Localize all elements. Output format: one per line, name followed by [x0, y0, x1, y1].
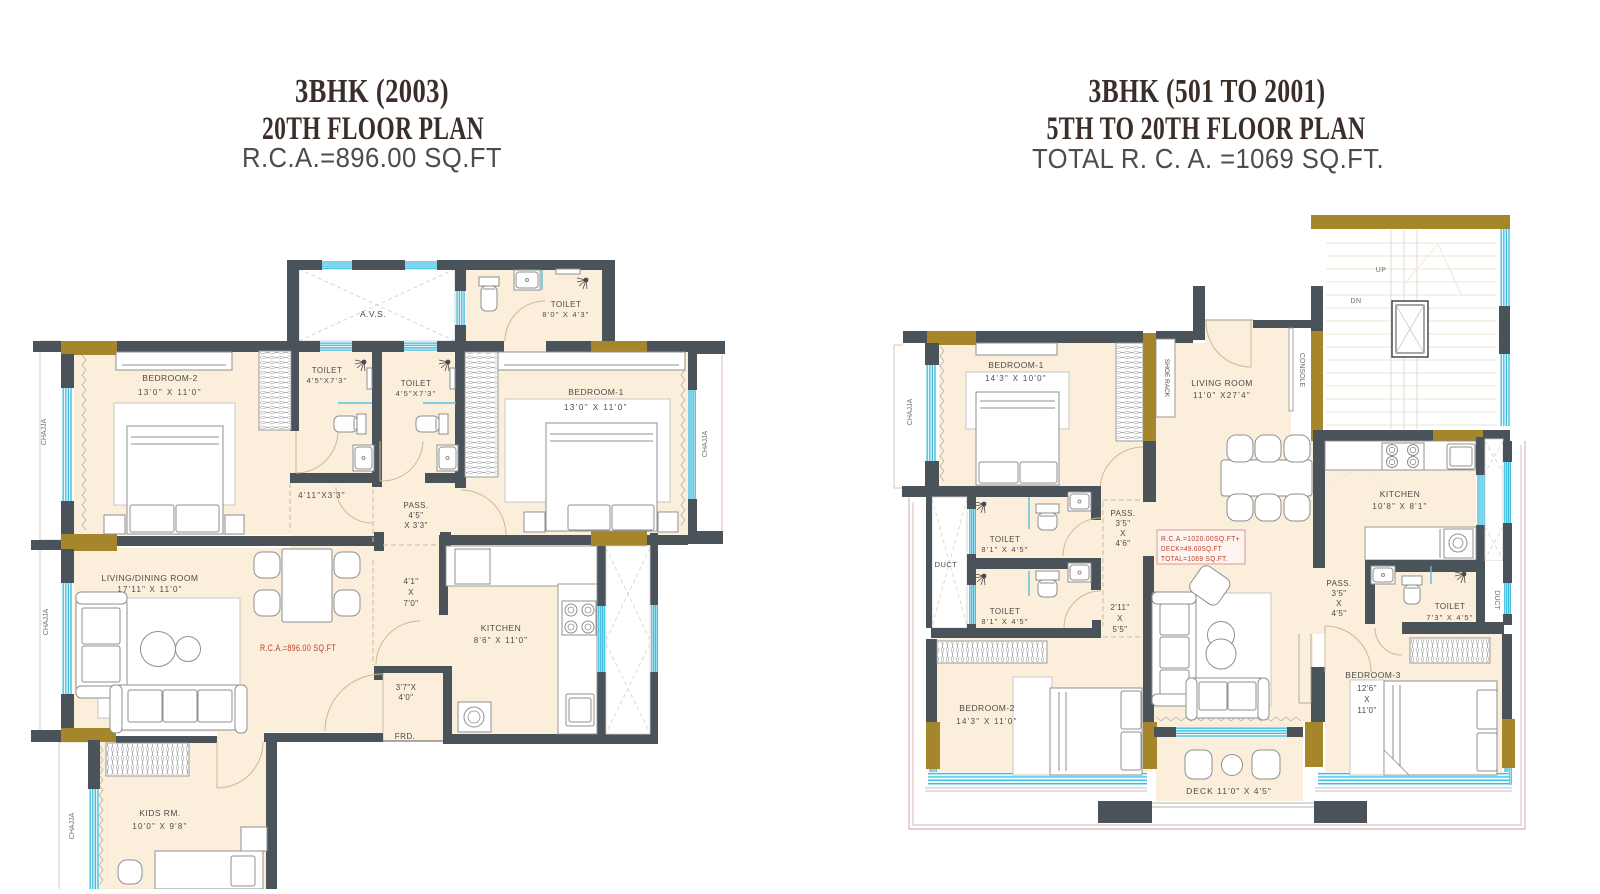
svg-text:R.C.A.=1020.00SQ.FT+: R.C.A.=1020.00SQ.FT+: [1161, 534, 1240, 543]
svg-text:A.V.S.: A.V.S.: [360, 309, 386, 319]
svg-text:8'1" X 4'5": 8'1" X 4'5": [981, 545, 1028, 554]
svg-text:TOILET: TOILET: [990, 607, 1021, 616]
svg-text:KIDS RM.: KIDS RM.: [139, 808, 180, 818]
svg-text:KITCHEN: KITCHEN: [1380, 489, 1420, 499]
svg-text:X: X: [1120, 529, 1126, 538]
svg-text:DECK=49.00SQ.FT: DECK=49.00SQ.FT: [1161, 544, 1222, 553]
svg-text:PASS.: PASS.: [1110, 509, 1135, 518]
svg-text:14'3" X 10'0": 14'3" X 10'0": [985, 374, 1047, 383]
svg-text:BEDROOM-3: BEDROOM-3: [1345, 670, 1401, 680]
svg-text:2'11": 2'11": [1110, 603, 1129, 612]
svg-text:5TH TO 20TH FLOOR PLAN: 5TH TO 20TH FLOOR PLAN: [1047, 111, 1366, 147]
svg-text:10'8" X 8'1": 10'8" X 8'1": [1372, 502, 1427, 511]
svg-text:8'1" X 4'5": 8'1" X 4'5": [981, 617, 1028, 626]
svg-text:KITCHEN: KITCHEN: [481, 623, 521, 633]
svg-text:3BHK (501 TO 2001): 3BHK (501 TO 2001): [1089, 73, 1326, 110]
svg-text:3'7"X: 3'7"X: [396, 683, 417, 692]
svg-text:8'0" X 4'3": 8'0" X 4'3": [542, 310, 589, 319]
svg-text:X: X: [408, 588, 414, 597]
svg-text:BEDROOM-1: BEDROOM-1: [988, 360, 1044, 370]
svg-text:11'0": 11'0": [1357, 706, 1376, 715]
svg-text:CONSOLE: CONSOLE: [1298, 353, 1305, 388]
svg-text:3'5": 3'5": [1331, 589, 1346, 598]
svg-text:13'0" X 11'0": 13'0" X 11'0": [564, 403, 628, 412]
svg-text:7'0": 7'0": [403, 599, 418, 608]
svg-text:CHAJJA: CHAJJA: [702, 430, 709, 457]
svg-text:4'5"X7'3": 4'5"X7'3": [307, 376, 348, 385]
svg-text:4'5"X7'3": 4'5"X7'3": [396, 389, 437, 398]
svg-text:TOILET: TOILET: [312, 366, 343, 375]
svg-text:4'1": 4'1": [403, 577, 418, 586]
svg-text:CHAJJA: CHAJJA: [907, 398, 914, 425]
svg-text:X: X: [1364, 695, 1370, 704]
svg-text:DUCT: DUCT: [1493, 590, 1500, 610]
svg-text:TOILET: TOILET: [551, 300, 582, 309]
svg-text:10'0" X 9'8": 10'0" X 9'8": [132, 822, 187, 831]
svg-text:CHAJJA: CHAJJA: [43, 608, 50, 635]
svg-text:3BHK (2003): 3BHK (2003): [295, 73, 449, 110]
svg-text:TOTAL R. C. A. =1069 SQ.FT.: TOTAL R. C. A. =1069 SQ.FT.: [1032, 143, 1384, 174]
svg-text:BEDROOM-2: BEDROOM-2: [959, 703, 1015, 713]
svg-text:DECK 11'0" X 4'5": DECK 11'0" X 4'5": [1186, 786, 1272, 796]
svg-text:14'3" X 11'0": 14'3" X 11'0": [956, 717, 1018, 726]
svg-text:LIVING/DINING ROOM: LIVING/DINING ROOM: [102, 573, 199, 583]
svg-text:7'3" X 4'5": 7'3" X 4'5": [1426, 613, 1473, 622]
svg-text:11'0" X27'4": 11'0" X27'4": [1193, 391, 1251, 400]
svg-text:4'11"X3'3": 4'11"X3'3": [298, 491, 346, 500]
svg-text:X: X: [1336, 599, 1342, 608]
svg-text:SHOE RACK: SHOE RACK: [1163, 359, 1170, 398]
svg-text:BEDROOM-1: BEDROOM-1: [568, 387, 624, 397]
svg-text:TOILET: TOILET: [1435, 602, 1466, 611]
svg-text:13'0" X 11'0": 13'0" X 11'0": [138, 388, 202, 397]
svg-text:12'6": 12'6": [1357, 684, 1377, 693]
svg-text:BEDROOM-2: BEDROOM-2: [142, 373, 198, 383]
svg-text:8'6" X 11'0": 8'6" X 11'0": [474, 636, 529, 645]
svg-text:CHAJJA: CHAJJA: [69, 812, 76, 839]
svg-text:5'5": 5'5": [1112, 625, 1127, 634]
svg-text:FRD.: FRD.: [395, 732, 415, 741]
svg-text:X: X: [1117, 614, 1123, 623]
svg-text:4'5": 4'5": [1331, 609, 1346, 618]
svg-text:TOTAL=1069 SQ.FT.: TOTAL=1069 SQ.FT.: [1161, 554, 1228, 563]
svg-text:LIVING ROOM: LIVING ROOM: [1191, 378, 1253, 388]
svg-text:PASS.: PASS.: [1326, 579, 1351, 588]
svg-text:R.C.A.=896.00 SQ.FT: R.C.A.=896.00 SQ.FT: [260, 643, 336, 653]
svg-text:PASS.: PASS.: [403, 501, 428, 510]
svg-text:4'0": 4'0": [398, 693, 413, 702]
svg-text:TOILET: TOILET: [401, 379, 432, 388]
svg-text:TOILET: TOILET: [990, 535, 1021, 544]
svg-text:UP: UP: [1376, 267, 1387, 274]
svg-text:3'5": 3'5": [1115, 519, 1130, 528]
svg-text:DN: DN: [1350, 298, 1361, 305]
svg-text:4'5": 4'5": [408, 511, 423, 520]
svg-text:4'6": 4'6": [1115, 539, 1130, 548]
svg-text:R.C.A.=896.00 SQ.FT: R.C.A.=896.00 SQ.FT: [242, 142, 502, 173]
svg-text:CHAJJA: CHAJJA: [41, 418, 48, 445]
svg-text:17'11" X 11'0": 17'11" X 11'0": [117, 585, 182, 594]
svg-text:DUCT: DUCT: [935, 560, 958, 569]
svg-text:X 3'3": X 3'3": [404, 521, 428, 530]
